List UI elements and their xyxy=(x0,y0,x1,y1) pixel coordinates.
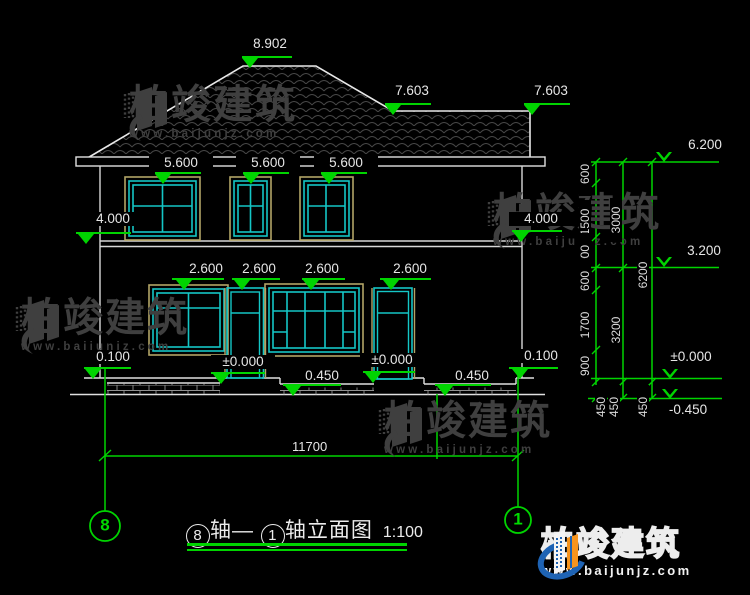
title-label: 轴立面图 xyxy=(285,519,373,542)
chain-dimension-label: 450 xyxy=(637,385,649,429)
elevation-marker-triangle-icon xyxy=(242,58,258,68)
elevation-marker-label: ±0.000 xyxy=(659,350,723,364)
elevation-marker-label: 5.600 xyxy=(236,156,300,170)
elevation-marker-label: 6.200 xyxy=(673,138,737,152)
chain-dimension-label: 6200 xyxy=(637,253,649,297)
elevation-marker-label: 7.603 xyxy=(380,84,444,98)
elevation-marker-triangle-icon xyxy=(285,386,301,396)
elevation-marker-triangle-icon xyxy=(512,369,528,379)
elevation-marker-triangle-icon xyxy=(385,105,401,115)
elevation-marker-label: 5.600 xyxy=(314,156,378,170)
window xyxy=(300,177,353,240)
elevation-marker-label: 0.450 xyxy=(440,369,504,383)
chain-dimension-label: 1700 xyxy=(579,303,591,347)
elevation-marker-triangle-inner xyxy=(665,369,675,375)
window xyxy=(125,177,200,240)
elevation-marker-label: 8.902 xyxy=(238,37,302,51)
elevation-marker-triangle-icon xyxy=(234,280,250,290)
builder-logo-icon xyxy=(122,84,174,148)
elevation-marker-label: -0.450 xyxy=(656,403,720,417)
chain-dimension-label: 3000 xyxy=(610,198,622,242)
elevation-marker-label: 5.600 xyxy=(149,156,213,170)
second-floor-windows xyxy=(125,177,353,240)
elevation-marker-triangle-icon xyxy=(321,174,337,184)
elevation-marker-label: 2.600 xyxy=(227,262,291,276)
elevation-marker-triangle-icon xyxy=(524,105,540,115)
cad-elevation-screenshot: 柏竣建筑 www.baijunjz.com 柏竣建筑 www.baijunjz.… xyxy=(0,0,750,595)
watermark: 柏竣建筑 www.baijunjz.com xyxy=(14,297,189,353)
elevation-marker-triangle-icon xyxy=(303,280,319,290)
title-underline xyxy=(187,543,407,546)
elevation-marker-triangle-icon xyxy=(213,374,229,384)
builder-logo-color-icon xyxy=(535,526,589,586)
elevation-marker-triangle-inner xyxy=(659,152,669,158)
elevation-marker-label: 4.000 xyxy=(81,212,145,226)
window xyxy=(230,177,271,240)
axis-number-1: 1 xyxy=(513,510,522,530)
chain-dimension-label: 600 xyxy=(579,152,591,196)
elevation-marker-label: 2.600 xyxy=(290,262,354,276)
overall-width-label: 11700 xyxy=(290,439,329,454)
watermark: 柏竣建筑 www.baijunjz.com xyxy=(377,400,552,456)
elevation-marker-label: 0.450 xyxy=(290,369,354,383)
elevation-marker-triangle-icon xyxy=(437,386,453,396)
window xyxy=(265,284,363,356)
eave-fascia xyxy=(76,157,545,166)
elevation-marker-triangle-inner xyxy=(659,257,669,263)
elevation-marker-triangle-icon xyxy=(243,174,259,184)
chain-dimension-label: 900 xyxy=(579,344,591,388)
elevation-marker-triangle-icon xyxy=(365,373,381,383)
plinth-brick xyxy=(107,384,220,395)
chain-dimension-label: 450 xyxy=(608,385,620,429)
elevation-marker-label: 7.603 xyxy=(519,84,583,98)
elevation-marker-triangle-inner xyxy=(665,389,675,395)
chain-dimension-label: 600 xyxy=(579,259,591,303)
elevation-marker-label: 2.600 xyxy=(378,262,442,276)
elevation-marker-triangle-icon xyxy=(383,280,399,290)
elevation-marker-triangle-icon xyxy=(78,234,94,244)
elevation-marker-label: 0.100 xyxy=(81,350,145,364)
watermark: 柏竣建筑 www.baijunjz.com xyxy=(122,84,297,140)
axis-number-8: 8 xyxy=(100,516,109,536)
elevation-marker-label: ±0.000 xyxy=(211,355,275,369)
elevation-marker-triangle-icon xyxy=(513,232,529,242)
elevation-marker-triangle-icon xyxy=(85,369,101,379)
chain-dimension-label: 3200 xyxy=(610,308,622,352)
footer-logo: 柏竣建筑 www.baijunjz.com xyxy=(535,526,692,578)
chain-dimension-label: 450 xyxy=(595,385,607,429)
elevation-marker-label: 3.200 xyxy=(672,244,736,258)
builder-logo-icon xyxy=(14,297,66,361)
builder-logo-icon xyxy=(377,400,429,464)
elevation-marker-label: ±0.000 xyxy=(360,353,424,367)
elevation-marker-label: 4.000 xyxy=(509,212,573,226)
elevation-marker-triangle-icon xyxy=(155,174,171,184)
title-axis-left-label: 轴— xyxy=(210,519,254,542)
elevation-marker-triangle-icon xyxy=(176,280,192,290)
title-underline xyxy=(187,549,407,552)
elevation-marker-label: 0.100 xyxy=(509,349,573,363)
title-scale: 1:100 xyxy=(383,524,423,541)
